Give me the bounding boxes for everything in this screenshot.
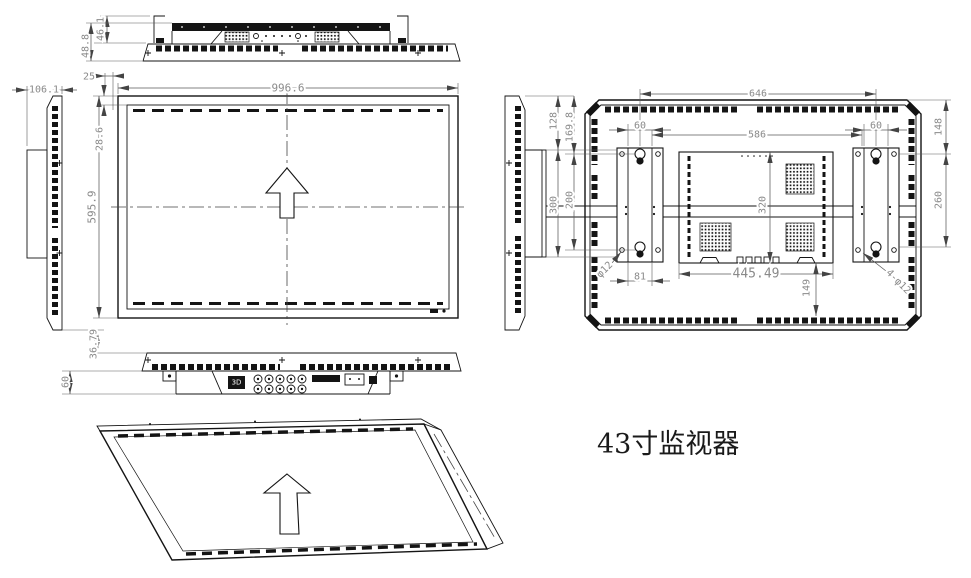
dim-rear-right-top: 148 xyxy=(934,118,945,136)
dim-mount-hole-top: 169.8 xyxy=(565,112,576,142)
dim-mount-top-gap: 128 xyxy=(549,112,560,130)
vesa-bracket-right xyxy=(853,148,899,262)
dim-rear-hook-span: 646 xyxy=(749,89,767,100)
drawing-page: 46.1 48.8 25 106.1 xyxy=(0,0,971,578)
dim-bottom-recess: 60 xyxy=(61,376,72,388)
dim-bottom-face: 36.79 xyxy=(89,329,100,359)
dim-rear-right-span: 260 xyxy=(934,191,945,209)
vent-grid xyxy=(786,223,814,251)
mount-plate-edge xyxy=(542,150,546,257)
vent-grid xyxy=(786,164,814,194)
up-arrow-icon xyxy=(266,168,308,218)
dim-front-width: 996.6 xyxy=(271,82,304,95)
drawing-title: 43寸监视器 xyxy=(597,429,739,460)
label-3d: 3D xyxy=(232,379,242,387)
dim-mount-bracket-span: 300 xyxy=(549,196,560,214)
vent-grid xyxy=(700,223,731,251)
vesa-bracket-left xyxy=(617,148,663,262)
technical-drawing: 46.1 48.8 25 106.1 xyxy=(0,0,971,578)
rear-view: 646 586 60 60 148 260 320 445.49 149 xyxy=(525,89,951,331)
dim-top-body: 48.8 xyxy=(81,34,92,58)
hanging-hook-right xyxy=(397,16,408,43)
dim-top-lip: 25 xyxy=(83,72,95,83)
dvi-connector xyxy=(345,374,364,385)
right-side-view xyxy=(505,96,546,330)
left-side-view: 106.1 xyxy=(12,85,77,331)
dim-bracket-plate-width: 81 xyxy=(634,272,646,283)
dim-bracket-left-width: 60 xyxy=(634,121,646,132)
dim-front-bezel: 28.6 xyxy=(95,127,106,151)
bottom-view: 3D 36.79 60 xyxy=(61,329,462,394)
front-view: 996.6 595.9 28.6 xyxy=(86,82,466,326)
dim-top-hook: 46.1 xyxy=(96,17,107,41)
ir-receiver xyxy=(430,309,438,313)
dim-box-bottom: 149 xyxy=(802,279,813,297)
power-socket xyxy=(369,376,377,384)
dim-box-width: 445.49 xyxy=(733,267,780,282)
power-led xyxy=(442,309,445,312)
dim-side-depth: 106.1 xyxy=(29,85,59,96)
wall-mount-box xyxy=(27,150,47,258)
connector-panel: 3D xyxy=(228,374,377,393)
dim-mount-hole-span: 200 xyxy=(565,191,576,209)
top-connector-cluster xyxy=(225,32,339,42)
dim-bracket-right-width: 60 xyxy=(870,121,882,132)
dim-front-height: 595.9 xyxy=(86,190,99,223)
hanging-hook-left xyxy=(154,16,165,43)
dim-box-height: 320 xyxy=(758,196,769,214)
isometric-view xyxy=(97,419,503,561)
dim-rear-inner-span: 586 xyxy=(748,130,766,141)
up-arrow-icon xyxy=(264,474,310,534)
vga-connector xyxy=(312,375,340,382)
dim-holes-dia: 4-φ12 xyxy=(883,267,912,296)
electronics-box xyxy=(679,152,833,263)
